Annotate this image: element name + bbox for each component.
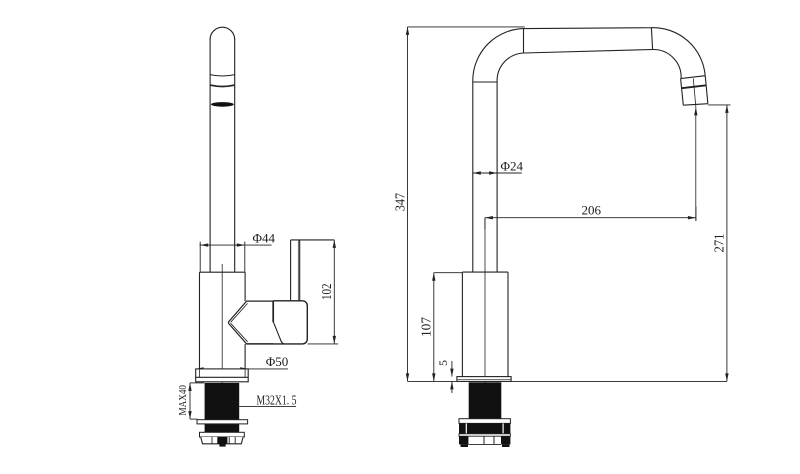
svg-text:206: 206 (582, 202, 602, 217)
svg-text:Φ50: Φ50 (266, 354, 289, 369)
svg-text:MAX40: MAX40 (177, 385, 189, 416)
svg-text:271: 271 (712, 234, 727, 253)
svg-text:5: 5 (436, 360, 450, 366)
svg-text:Φ24: Φ24 (501, 158, 524, 173)
svg-text:M32X1. 5: M32X1. 5 (257, 393, 297, 408)
svg-text:107: 107 (419, 317, 434, 337)
svg-text:Φ44: Φ44 (253, 230, 276, 245)
svg-text:347: 347 (393, 193, 408, 212)
svg-text:102: 102 (319, 284, 334, 301)
